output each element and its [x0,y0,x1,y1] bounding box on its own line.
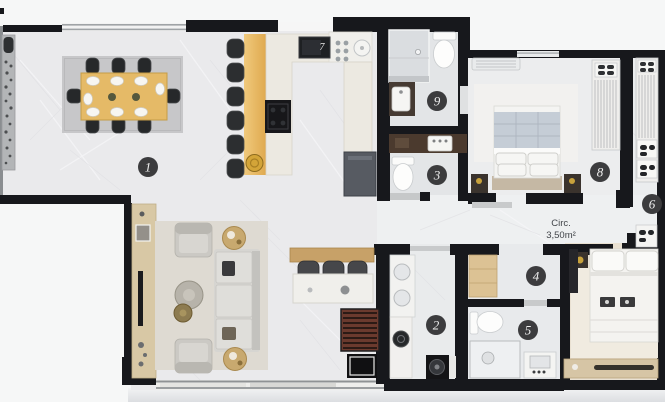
svg-text:4: 4 [533,269,540,284]
svg-text:2: 2 [433,318,440,333]
svg-text:8: 8 [597,165,604,180]
svg-text:9: 9 [434,94,441,109]
svg-text:3,50m²: 3,50m² [546,230,576,241]
svg-text:3: 3 [433,168,441,183]
svg-text:Circ.: Circ. [551,218,571,229]
svg-text:1: 1 [145,160,152,175]
svg-text:6: 6 [649,197,656,212]
svg-text:5: 5 [525,323,532,338]
